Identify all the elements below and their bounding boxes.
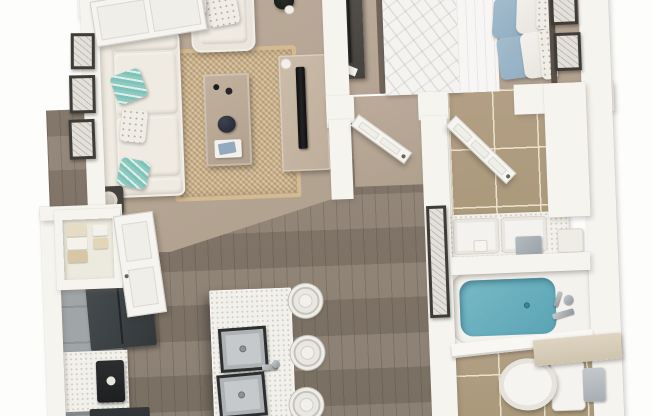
hall-tall-art-frame — [426, 205, 450, 318]
refrigerator-seam — [116, 284, 123, 344]
cord-item — [473, 240, 487, 253]
white-vase — [280, 58, 291, 69]
wall-art-print — [553, 0, 575, 22]
coffee-table — [203, 73, 252, 167]
toilet-paper-dispenser — [582, 367, 605, 402]
towel-stack — [93, 237, 108, 249]
patio-door-panel — [149, 0, 202, 32]
kitchen-range — [90, 407, 151, 416]
sink-drain — [239, 345, 246, 352]
bathroom-door-knob — [505, 174, 511, 180]
white-patterned-pillow — [119, 108, 148, 143]
bar-stool-seat — [298, 294, 313, 309]
bar-stool-seat — [300, 346, 315, 361]
towel-stack — [67, 237, 87, 250]
wall-art-frame — [550, 0, 578, 25]
bathtub-water — [459, 277, 557, 337]
wall-art-frame — [69, 75, 96, 114]
wall-art-frame — [71, 33, 95, 69]
wall-art-print — [72, 122, 93, 157]
towel-stack — [92, 224, 107, 236]
bed-duvet — [381, 0, 461, 96]
entry-door-panel — [121, 221, 152, 262]
coffee-maker — [96, 360, 126, 403]
closet-door-knob — [401, 154, 407, 160]
wall-closet-left — [329, 119, 354, 200]
floorplan-render — [0, 0, 652, 416]
towel-stack — [67, 250, 87, 263]
tub-faucet-handle — [564, 295, 574, 305]
wall-bathroom-right-upper — [543, 82, 590, 218]
candle-decor — [213, 84, 219, 90]
bed — [375, 0, 557, 96]
entry-door-panel — [128, 266, 159, 307]
living-tv — [296, 67, 308, 149]
sink-basin — [216, 371, 268, 416]
decor-bowl — [217, 115, 236, 133]
wall-art-frame — [68, 119, 96, 160]
coffee-cup — [106, 376, 115, 385]
wall-art-print — [72, 78, 93, 110]
bar-stool-seat — [299, 398, 314, 413]
island-faucet-base — [272, 360, 280, 368]
wall-art-print — [557, 35, 579, 68]
candle-decor — [225, 88, 232, 95]
patio-door-panel — [96, 0, 149, 40]
hall-tall-art-print — [429, 209, 447, 315]
wall-art-print — [74, 36, 92, 66]
white-box — [557, 228, 584, 253]
sofa — [95, 32, 185, 199]
apartment-plan — [0, 0, 652, 416]
kitchen-island — [209, 287, 297, 416]
living-tv-console — [278, 54, 330, 172]
laundry-counter — [448, 211, 570, 260]
wall-art-frame — [553, 32, 581, 71]
sink-drain — [238, 391, 246, 399]
towel-stack — [66, 223, 86, 237]
